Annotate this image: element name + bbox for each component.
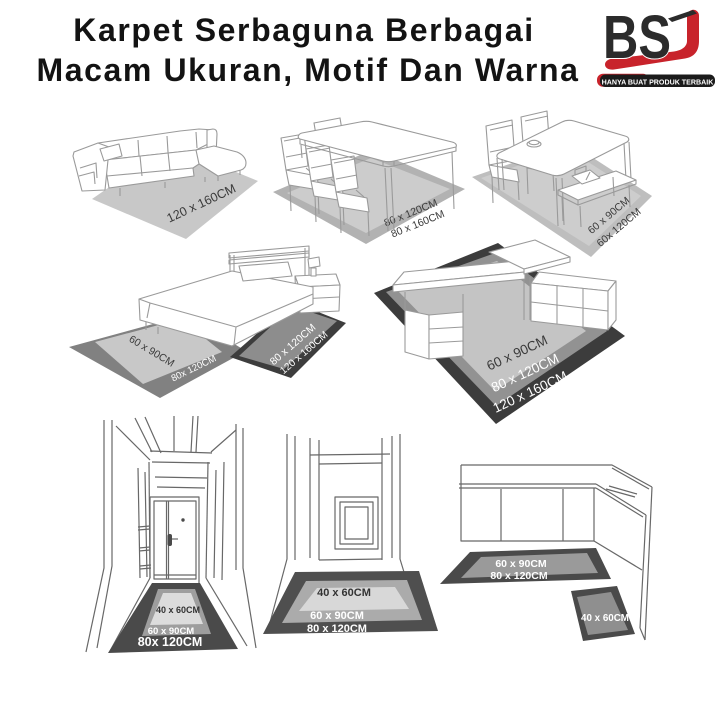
svg-text:80 x 120CM: 80 x 120CM: [490, 570, 547, 582]
svg-text:Karpet Serbaguna Berbagai: Karpet Serbaguna Berbagai: [73, 12, 534, 48]
svg-text:60 x 90CM: 60 x 90CM: [495, 558, 547, 570]
svg-text:40 x 60CM: 40 x 60CM: [156, 605, 200, 615]
svg-text:80 x 120CM: 80 x 120CM: [307, 623, 367, 635]
svg-text:40 x 60CM: 40 x 60CM: [317, 587, 371, 599]
svg-text:40 x 60CM: 40 x 60CM: [581, 613, 629, 624]
svg-text:BS: BS: [603, 3, 671, 71]
svg-text:80x 120CM: 80x 120CM: [138, 635, 203, 649]
svg-text:Macam Ukuran, Motif Dan Warna: Macam Ukuran, Motif Dan Warna: [36, 52, 579, 88]
svg-text:60 x 90CM: 60 x 90CM: [310, 610, 364, 622]
svg-text:HANYA BUAT PRODUK TERBAIK: HANYA BUAT PRODUK TERBAIK: [602, 79, 715, 87]
